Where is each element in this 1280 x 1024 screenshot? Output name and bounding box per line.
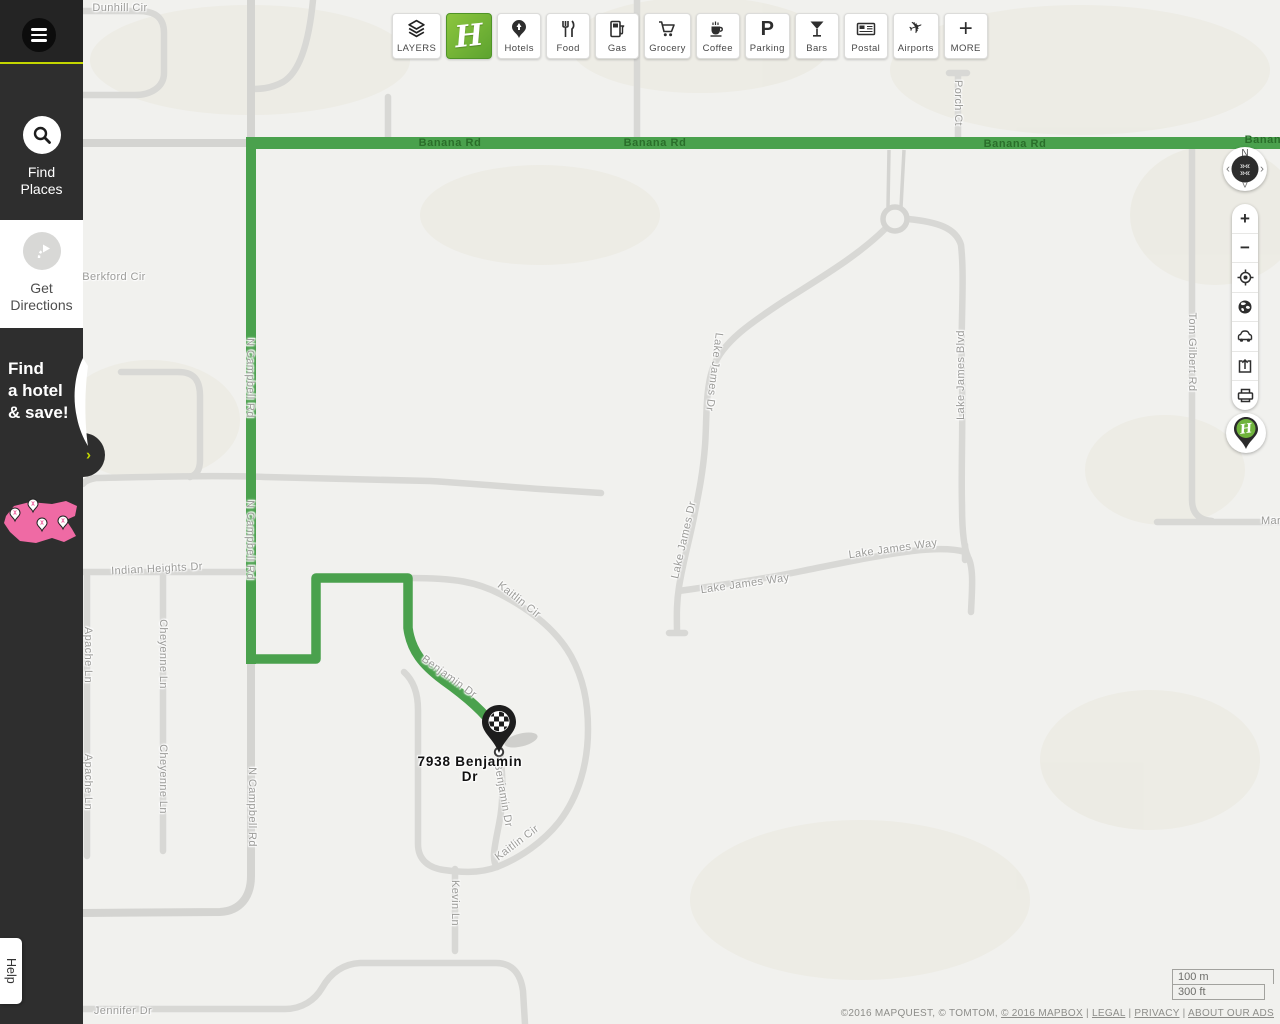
road-label: Cheyenne Ln: [157, 744, 169, 814]
recenter-button[interactable]: »«»«: [1232, 156, 1259, 183]
sidebar-item-find-places[interactable]: Find Places: [0, 64, 83, 220]
category-label: Parking: [750, 43, 785, 54]
globe-icon: [1237, 299, 1253, 315]
category-label: Food: [557, 43, 580, 54]
postcard-icon: [856, 19, 876, 39]
road-label: Porch Ct: [952, 80, 964, 126]
road-label: Lake James Blvd: [955, 330, 967, 420]
map-attribution: ©2016 MAPQUEST, © TOMTOM, © 2016 MAPBOX …: [841, 1008, 1274, 1019]
road-label: Cheyenne Ln: [157, 619, 169, 689]
road-label: Banana Rd: [1245, 134, 1280, 146]
road-label: Jennifer Dr: [94, 1005, 152, 1017]
mapquest-app: { "sidebar": { "find_places_label": "Fin…: [0, 0, 1280, 1024]
directions-icon: [23, 232, 61, 270]
hotel-promo-ad[interactable]: Find a hotel & save!: [0, 328, 83, 976]
road-label: Marc: [1261, 515, 1280, 527]
scale-metric: 100 m: [1172, 969, 1274, 984]
print-button[interactable]: [1232, 381, 1258, 410]
promo-white-pin-graphic: [69, 356, 89, 451]
cart-icon: [657, 19, 677, 39]
layers-label: LAYERS: [397, 43, 436, 54]
holiday-inn-pin-icon: H: [1233, 416, 1259, 450]
sidebar: Find Places Get Directions Find a hotel …: [0, 0, 83, 1024]
destination-address-label: 7938 Benjamin Dr: [413, 754, 527, 784]
export-map-icon: [1237, 358, 1253, 374]
road-label: Banana Rd: [624, 137, 687, 149]
layers-icon: [407, 19, 426, 38]
road-label: Apache Ln: [82, 627, 94, 683]
food-icon: [559, 19, 577, 39]
legal-link[interactable]: LEGAL: [1092, 1008, 1125, 1019]
help-label: Help: [4, 958, 18, 984]
zoom-out-icon: −: [1240, 239, 1250, 256]
mapbox-link[interactable]: © 2016 MAPBOX: [1001, 1008, 1083, 1019]
attribution-text: ©2016 MAPQUEST, © TOMTOM,: [841, 1008, 1001, 1019]
road-label: N Campbell Rd: [244, 338, 256, 418]
gas-pump-icon: [608, 19, 626, 39]
category-airports-button[interactable]: ✈ Airports: [893, 13, 939, 59]
airplane-icon: ✈: [906, 17, 926, 39]
category-food-button[interactable]: Food: [546, 13, 590, 59]
sidebar-item-get-directions[interactable]: Get Directions: [0, 220, 83, 328]
parking-icon: P: [761, 19, 774, 39]
category-label: Airports: [898, 43, 934, 54]
satellite-view-button[interactable]: [1232, 293, 1258, 323]
about-ads-link[interactable]: ABOUT OUR ADS: [1188, 1008, 1274, 1019]
export-map-button[interactable]: [1232, 352, 1258, 382]
pan-right-button[interactable]: ›: [1260, 161, 1264, 175]
road-label: Banana Rd: [419, 137, 482, 149]
category-parking-button[interactable]: P Parking: [745, 13, 790, 59]
category-bars-button[interactable]: Bars: [795, 13, 839, 59]
road-label: Apache Ln: [82, 754, 94, 810]
category-hotels-button[interactable]: Hotels: [497, 13, 541, 59]
map-tool-stack: + −: [1232, 204, 1258, 410]
plus-icon: +: [959, 19, 973, 38]
get-directions-label: Get Directions: [9, 280, 75, 314]
category-label: Bars: [806, 43, 827, 54]
map-canvas[interactable]: Dunhill CirBerkford CirN Campbell RdN Ca…: [0, 0, 1280, 1024]
scale-imperial: 300 ft: [1172, 984, 1265, 1000]
zoom-in-button[interactable]: +: [1232, 204, 1258, 234]
more-label: MORE: [951, 43, 981, 54]
category-gas-button[interactable]: Gas: [595, 13, 639, 59]
zoom-in-icon: +: [1240, 210, 1250, 227]
category-label: Coffee: [703, 43, 733, 54]
road-label: Kevin Ln: [449, 880, 461, 926]
sidebar-header: [0, 0, 83, 62]
printer-icon: [1237, 388, 1254, 403]
layers-button[interactable]: LAYERS: [392, 13, 441, 59]
category-label: Gas: [608, 43, 627, 54]
poi-toolbar: LAYERS H Hotels Food Gas Grocery: [392, 13, 988, 59]
road-label: Tom Gilbert Rd: [1186, 313, 1198, 392]
help-button[interactable]: Help: [0, 938, 22, 1004]
category-label: Grocery: [649, 43, 686, 54]
map-roads-layer: [0, 0, 1280, 1024]
minor-roads: [83, 0, 1280, 1024]
road-label: Dunhill Cir: [92, 2, 147, 14]
category-postal-button[interactable]: Postal: [844, 13, 888, 59]
holiday-inn-logo: H: [454, 20, 485, 53]
category-grocery-button[interactable]: Grocery: [644, 13, 691, 59]
category-coffee-button[interactable]: Coffee: [696, 13, 740, 59]
hotel-pin-icon: [510, 19, 528, 39]
pan-left-button[interactable]: ‹: [1226, 161, 1230, 175]
more-categories-button[interactable]: + MORE: [944, 13, 988, 59]
compass-pan-control: N ‹ › ˅ »«»«: [1223, 147, 1267, 191]
separator: |: [1083, 1008, 1092, 1019]
category-label: Postal: [851, 43, 880, 54]
locate-me-button[interactable]: [1232, 263, 1258, 293]
find-places-label: Find Places: [12, 164, 72, 198]
holiday-inn-map-pin-button[interactable]: H: [1226, 413, 1266, 453]
separator: |: [1180, 1008, 1189, 1019]
road-label: N Campbell Rd: [244, 500, 256, 580]
traffic-button[interactable]: [1232, 322, 1258, 352]
road-label: Banana Rd: [984, 138, 1047, 150]
holiday-inn-brand-button[interactable]: H: [446, 13, 492, 59]
car-icon: [1236, 329, 1254, 343]
coffee-cup-icon: [708, 19, 728, 39]
road-label: Berkford Cir: [82, 271, 145, 283]
locate-icon: [1237, 269, 1254, 286]
map-scale: 100 m 300 ft: [1172, 969, 1274, 1000]
zoom-out-button[interactable]: −: [1232, 234, 1258, 264]
search-icon: [23, 116, 61, 154]
menu-button[interactable]: [22, 18, 56, 52]
privacy-link[interactable]: PRIVACY: [1134, 1008, 1179, 1019]
category-label: Hotels: [505, 43, 534, 54]
roundabout: [883, 207, 907, 231]
usa-map-graphic: [2, 496, 82, 554]
road-label: N Campbell Rd: [246, 767, 258, 847]
martini-icon: [808, 19, 826, 39]
